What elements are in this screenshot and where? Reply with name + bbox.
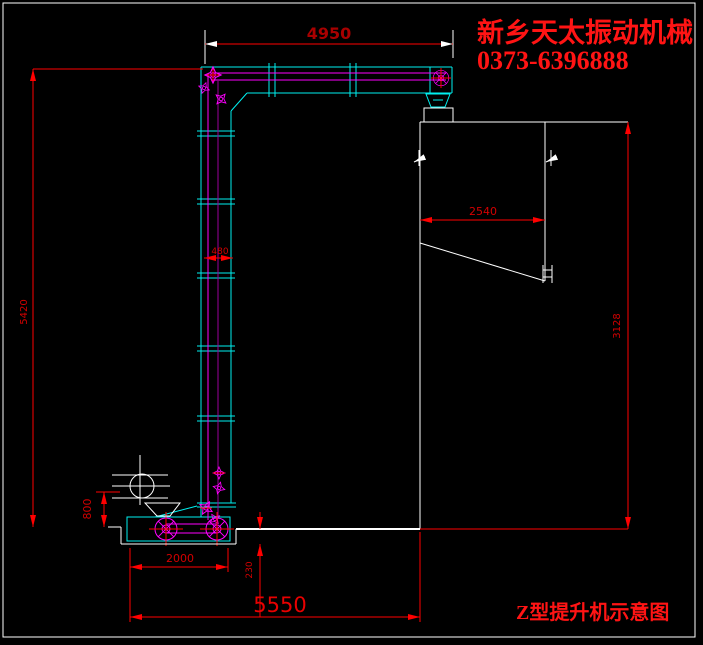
dim-pit-depth-label: 230 [245, 561, 255, 578]
dim-casing-width-label: 480 [211, 247, 228, 257]
dim-overall-height-label: 5420 [19, 299, 30, 324]
cad-drawing-canvas: 4950 5420 2540 3128 480 800 2000 230 [0, 0, 703, 645]
company-phone-text: 0373-6396888 [477, 46, 629, 75]
dim-overall-length-label: 5550 [253, 593, 306, 617]
dim-hopper-height-label: 3128 [612, 313, 623, 338]
dim-top-width-label: 4950 [307, 24, 352, 43]
dim-boot-length-label: 2000 [166, 552, 194, 565]
dim-feed-height-label: 800 [81, 499, 94, 520]
company-name-text: 新乡天太振动机械 [477, 17, 693, 48]
z-elevator-drawing: 4950 5420 2540 3128 480 800 2000 230 [0, 0, 703, 645]
dim-hopper-width-label: 2540 [469, 205, 497, 218]
drawing-title-text: Z型提升机示意图 [516, 600, 669, 624]
drawing-background [0, 0, 703, 645]
